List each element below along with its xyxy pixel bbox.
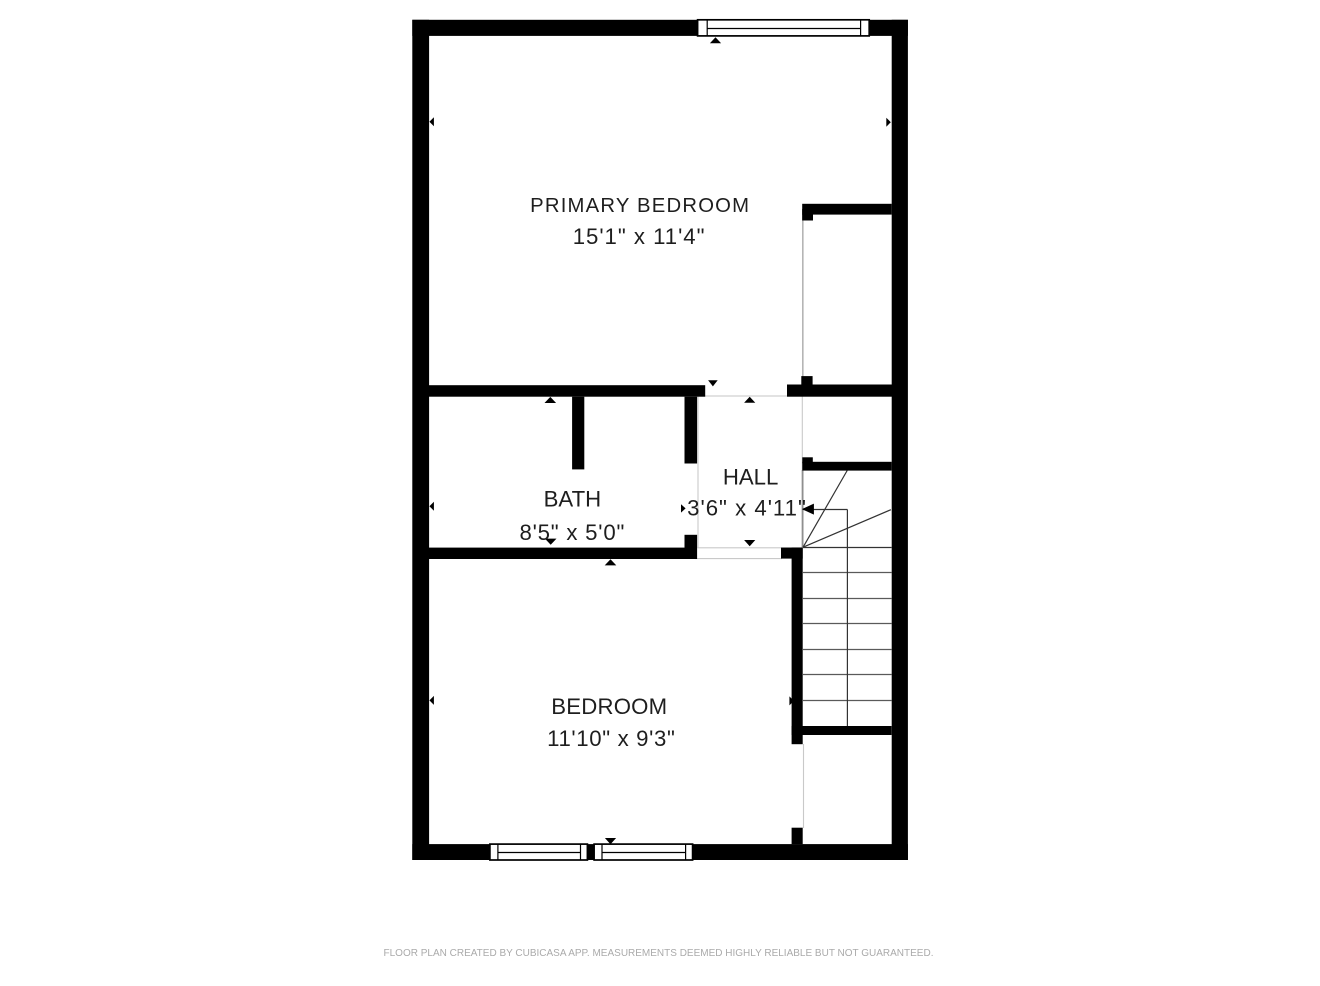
svg-text:3'6" x 4'11": 3'6" x 4'11" [687,496,807,521]
svg-text:15'1" x 11'4": 15'1" x 11'4" [573,224,706,249]
svg-text:8'5" x 5'0": 8'5" x 5'0" [519,520,625,545]
svg-text:BEDROOM: BEDROOM [551,694,667,719]
svg-text:HALL: HALL [723,465,779,490]
svg-text:BATH: BATH [544,487,602,512]
svg-text:FLOOR PLAN CREATED BY CUBICASA: FLOOR PLAN CREATED BY CUBICASA APP. MEAS… [384,948,934,959]
svg-text:PRIMARY BEDROOM: PRIMARY BEDROOM [530,195,750,217]
svg-text:11'10" x 9'3": 11'10" x 9'3" [547,726,675,751]
